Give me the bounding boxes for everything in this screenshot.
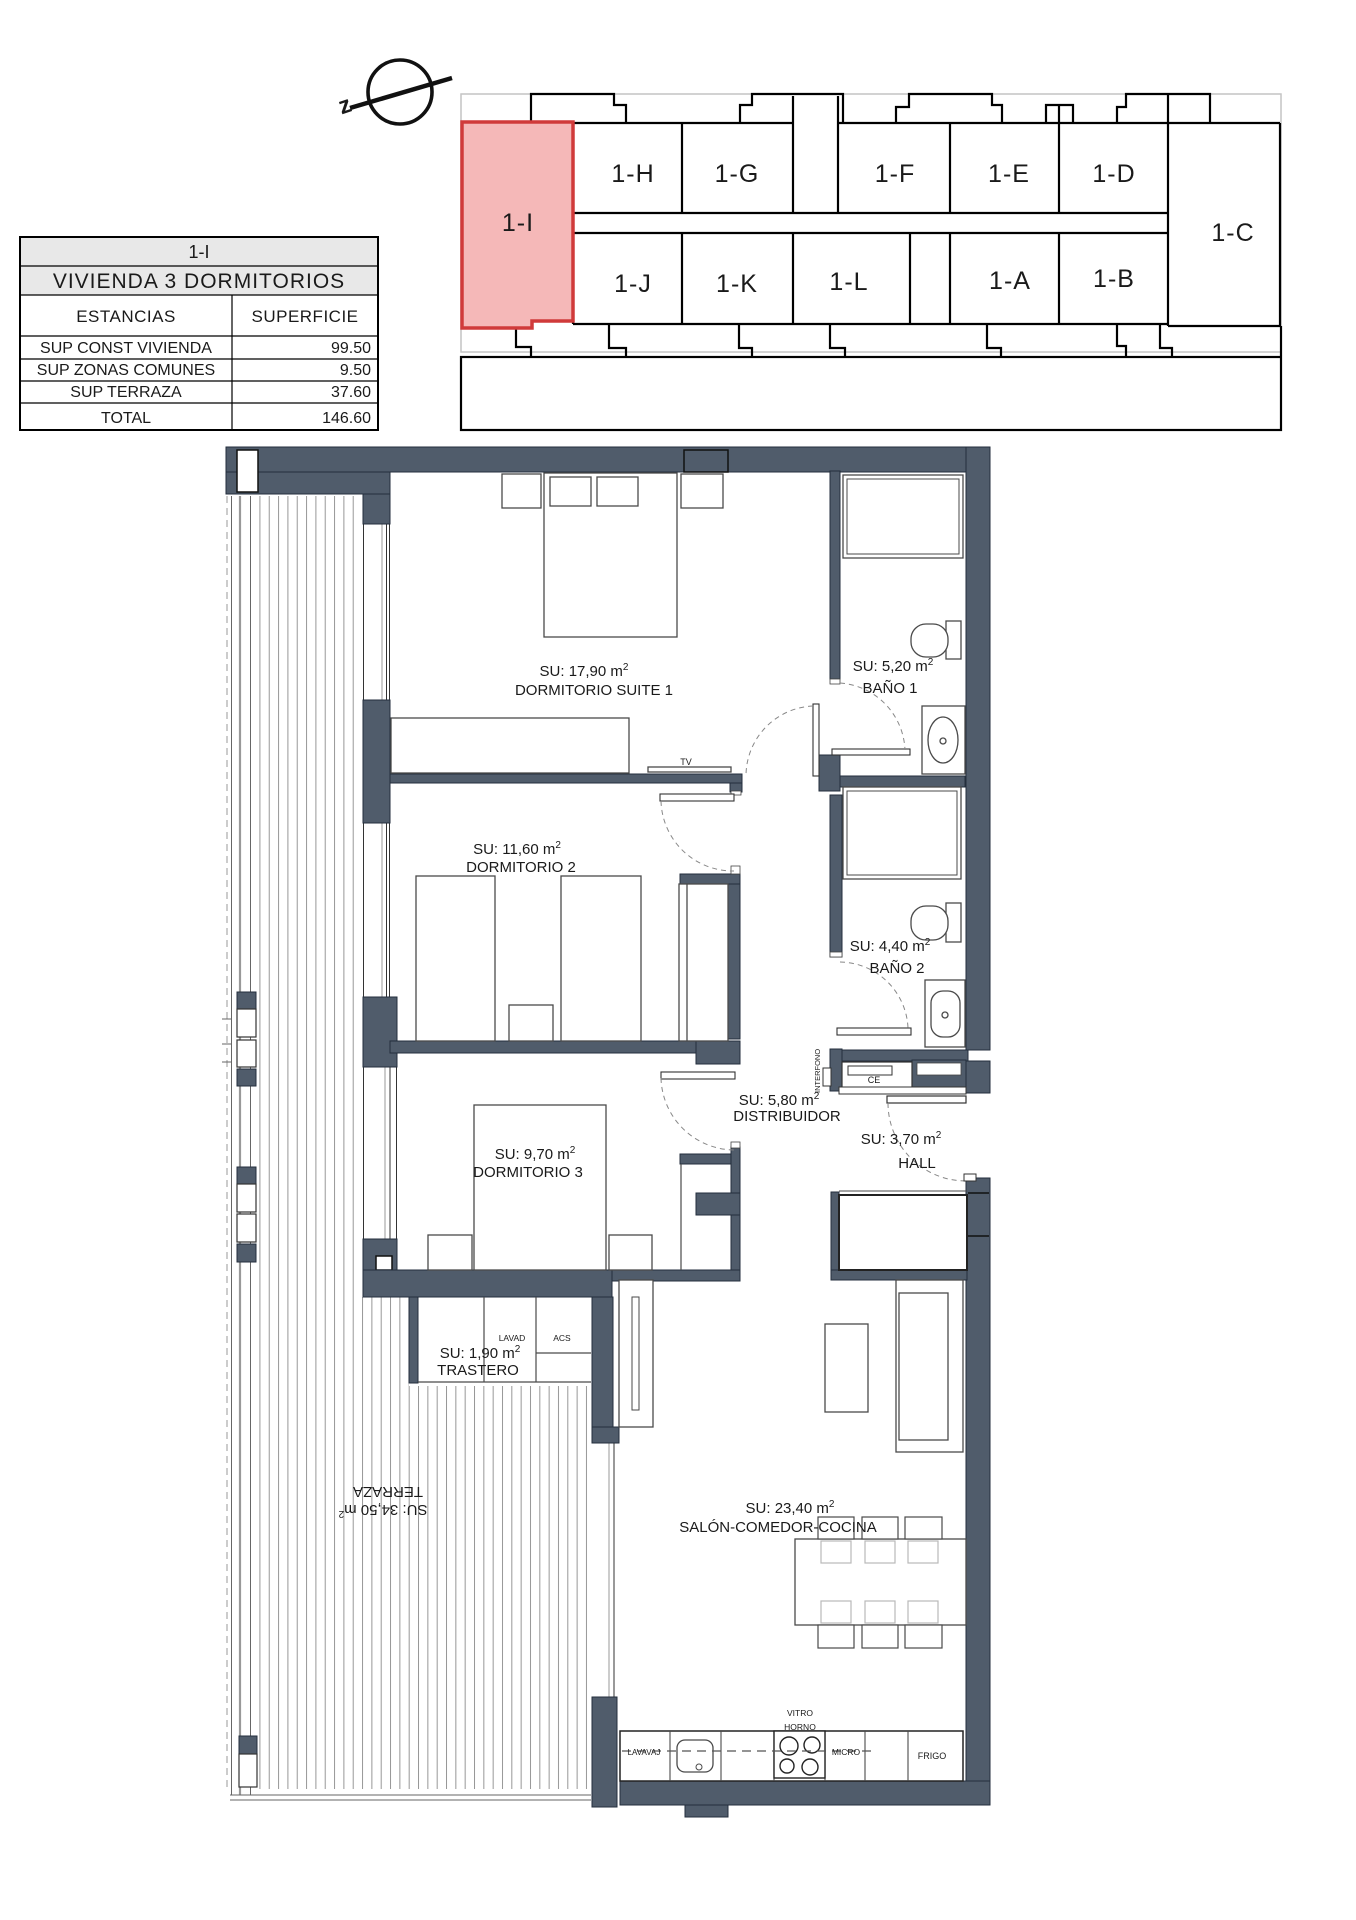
- svg-text:SU: 17,90 m2: SU: 17,90 m2: [540, 662, 629, 680]
- svg-text:1-G: 1-G: [715, 160, 760, 188]
- svg-text:SUPERFICIE: SUPERFICIE: [251, 307, 358, 326]
- svg-text:9.50: 9.50: [340, 362, 371, 379]
- svg-text:SU: 5,80 m2: SU: 5,80 m2: [739, 1091, 820, 1109]
- svg-text:1-D: 1-D: [1092, 160, 1135, 188]
- svg-text:1-B: 1-B: [1093, 265, 1135, 293]
- svg-text:TOTAL: TOTAL: [101, 410, 151, 427]
- svg-text:SU: 3,70 m2: SU: 3,70 m2: [861, 1130, 942, 1148]
- svg-text:SU: 5,20 m2: SU: 5,20 m2: [853, 657, 934, 675]
- svg-text:1-F: 1-F: [875, 160, 916, 188]
- svg-text:SU: 23,40 m2: SU: 23,40 m2: [746, 1499, 835, 1517]
- svg-text:1-C: 1-C: [1211, 219, 1254, 247]
- svg-text:ACS: ACS: [553, 1333, 571, 1343]
- svg-text:1-H: 1-H: [611, 160, 654, 188]
- svg-text:CE: CE: [868, 1075, 881, 1085]
- svg-text:LAVAD: LAVAD: [499, 1333, 526, 1343]
- svg-text:ESTANCIAS: ESTANCIAS: [76, 307, 176, 326]
- svg-text:VITRO: VITRO: [787, 1708, 813, 1718]
- svg-text:SU: 1,90 m2: SU: 1,90 m2: [440, 1344, 521, 1362]
- svg-text:1-J: 1-J: [614, 270, 652, 298]
- svg-text:1-I: 1-I: [502, 209, 534, 237]
- svg-text:DISTRIBUIDOR: DISTRIBUIDOR: [733, 1108, 841, 1125]
- svg-text:SU: 34,50 m2: SU: 34,50 m2: [338, 1501, 427, 1519]
- svg-text:146.60: 146.60: [322, 410, 371, 427]
- svg-text:DORMITORIO SUITE 1: DORMITORIO SUITE 1: [515, 682, 673, 699]
- svg-text:SALÓN-COMEDOR-COCINA: SALÓN-COMEDOR-COCINA: [679, 1519, 877, 1536]
- svg-text:SU: 11,60 m2: SU: 11,60 m2: [473, 840, 561, 858]
- svg-text:99.50: 99.50: [331, 340, 371, 357]
- svg-text:HALL: HALL: [898, 1155, 936, 1172]
- svg-text:MICRO: MICRO: [832, 1747, 861, 1757]
- svg-text:TV: TV: [680, 757, 692, 767]
- svg-text:TRASTERO: TRASTERO: [437, 1362, 519, 1379]
- svg-text:FRIGO: FRIGO: [918, 1751, 947, 1761]
- svg-text:37.60: 37.60: [331, 384, 371, 401]
- svg-text:SU: 4,40 m2: SU: 4,40 m2: [850, 937, 931, 955]
- svg-text:DORMITORIO 3: DORMITORIO 3: [473, 1164, 583, 1181]
- svg-text:SUP CONST VIVIENDA: SUP CONST VIVIENDA: [40, 340, 212, 357]
- svg-text:1-K: 1-K: [716, 270, 758, 298]
- svg-text:LAVAVAJ: LAVAVAJ: [628, 1748, 661, 1757]
- svg-text:SU: 9,70 m2: SU: 9,70 m2: [495, 1145, 576, 1163]
- svg-text:SUP TERRAZA: SUP TERRAZA: [70, 384, 182, 401]
- svg-text:SUP ZONAS COMUNES: SUP ZONAS COMUNES: [37, 362, 215, 379]
- svg-text:DORMITORIO 2: DORMITORIO 2: [466, 859, 576, 876]
- svg-text:BAÑO 2: BAÑO 2: [869, 960, 924, 977]
- svg-text:TERRAZA: TERRAZA: [353, 1483, 423, 1500]
- svg-text:1-A: 1-A: [989, 267, 1031, 295]
- svg-text:HORNO: HORNO: [784, 1722, 816, 1732]
- svg-text:VIVIENDA 3 DORMITORIOS: VIVIENDA 3 DORMITORIOS: [53, 270, 345, 293]
- svg-text:INTERFONO: INTERFONO: [813, 1049, 822, 1093]
- svg-text:1-I: 1-I: [188, 242, 209, 262]
- svg-text:1-E: 1-E: [988, 160, 1030, 188]
- svg-text:1-L: 1-L: [829, 268, 868, 296]
- svg-text:BAÑO 1: BAÑO 1: [862, 680, 917, 697]
